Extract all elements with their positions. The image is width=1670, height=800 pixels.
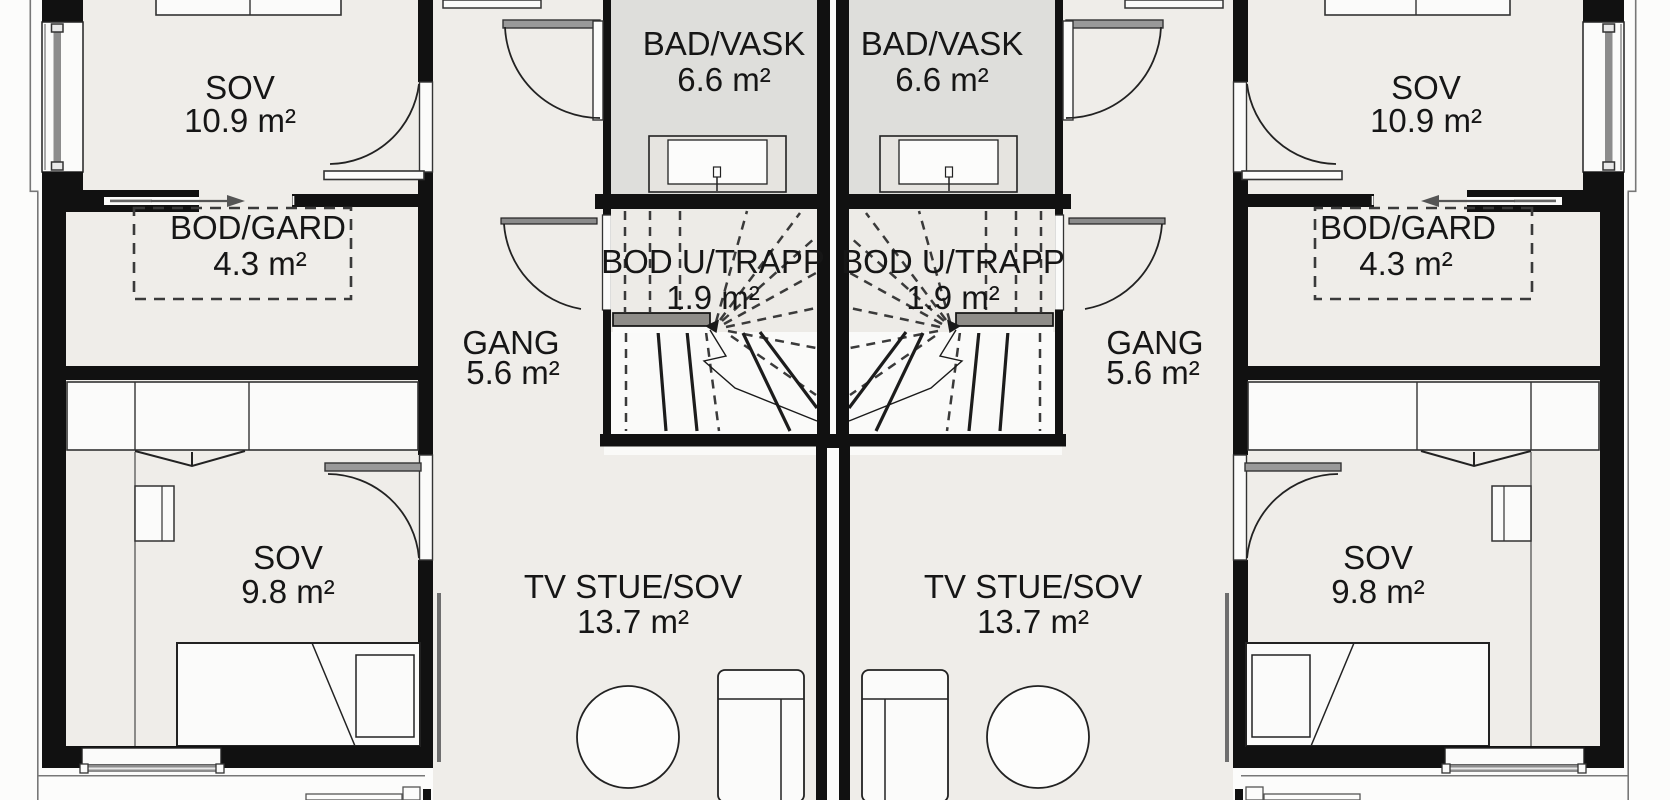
svg-text:4.3 m²: 4.3 m² [213,245,307,282]
svg-text:9.8 m²: 9.8 m² [241,573,335,610]
svg-text:SOV: SOV [205,69,275,106]
svg-text:BAD/VASK: BAD/VASK [643,25,806,62]
svg-text:6.6 m²: 6.6 m² [677,61,771,98]
svg-text:10.9 m²: 10.9 m² [1370,102,1482,139]
svg-text:SOV: SOV [1343,539,1413,576]
svg-text:BOD/GARD: BOD/GARD [170,209,346,246]
svg-text:BAD/VASK: BAD/VASK [861,25,1024,62]
svg-text:5.6 m²: 5.6 m² [466,354,560,391]
svg-text:BOD U/TRAPP: BOD U/TRAPP [601,243,825,280]
svg-text:BOD U/TRAPP: BOD U/TRAPP [841,243,1065,280]
svg-text:TV STUE/SOV: TV STUE/SOV [924,568,1142,605]
svg-text:TV STUE/SOV: TV STUE/SOV [524,568,742,605]
svg-text:6.6 m²: 6.6 m² [895,61,989,98]
svg-text:BOD/GARD: BOD/GARD [1320,209,1496,246]
svg-text:10.9 m²: 10.9 m² [184,102,296,139]
svg-text:4.3 m²: 4.3 m² [1359,245,1453,282]
svg-text:1.9 m²: 1.9 m² [906,279,1000,316]
svg-text:13.7 m²: 13.7 m² [977,603,1089,640]
svg-text:SOV: SOV [1391,69,1461,106]
svg-text:13.7 m²: 13.7 m² [577,603,689,640]
svg-text:9.8 m²: 9.8 m² [1331,573,1425,610]
svg-text:1.9 m²: 1.9 m² [666,279,760,316]
svg-text:5.6 m²: 5.6 m² [1106,354,1200,391]
svg-text:SOV: SOV [253,539,323,576]
